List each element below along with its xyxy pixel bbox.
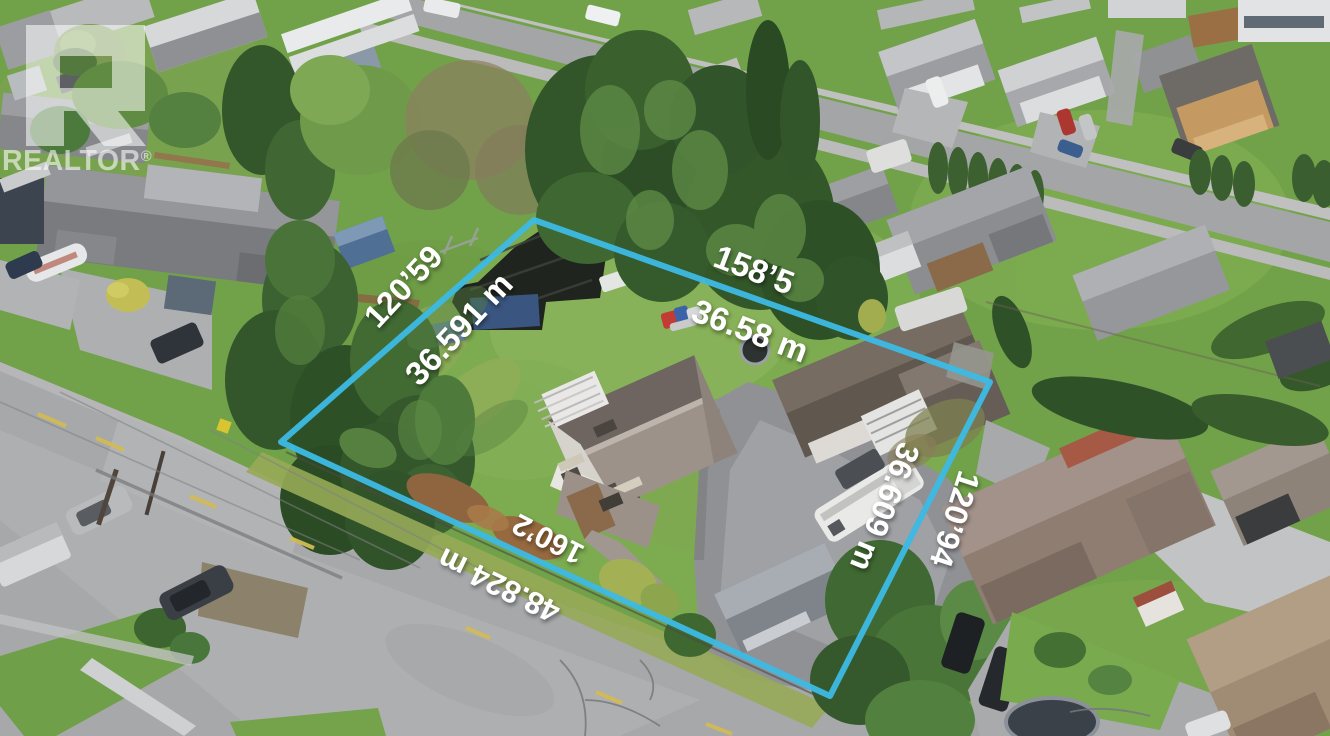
- svg-text:REALTOR®: REALTOR®: [2, 145, 152, 177]
